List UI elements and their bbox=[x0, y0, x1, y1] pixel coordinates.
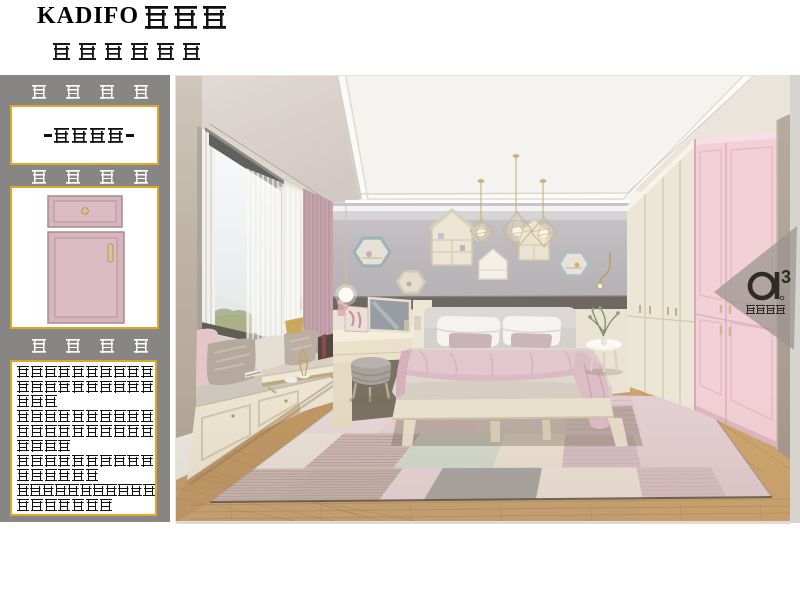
svg-text:3: 3 bbox=[781, 267, 791, 287]
